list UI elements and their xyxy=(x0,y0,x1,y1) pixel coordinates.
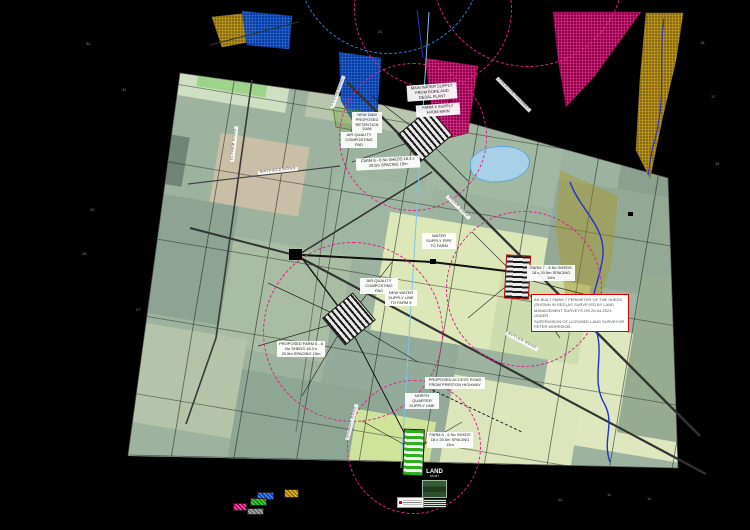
label-farm7-sheds: FARM 7 - 6 No SHEDS 18 x 20.5m SPACING 1… xyxy=(527,265,575,281)
legend-swatch-grey xyxy=(247,508,264,515)
label-retention-dam: NEW DAM PROPOSED RETENTION DAM xyxy=(352,112,382,133)
tick-10: 11 xyxy=(607,493,611,497)
building-marker-pipe xyxy=(430,259,436,264)
label-farm4-sheds: FARM 4 - 6 No SHEDS 18 x 20.5m SPACING 1… xyxy=(427,432,473,448)
tick-9: 12 xyxy=(558,498,562,502)
legend-swatch-magenta xyxy=(233,503,247,511)
legend-swatch-green xyxy=(250,498,267,506)
zone-blue-topleft xyxy=(242,11,292,49)
tick-3: 28 xyxy=(82,252,86,256)
label-north-quarter: NORTH QUARTER SUPPLY LINE xyxy=(405,393,439,409)
zone-yellow-topleft xyxy=(212,13,259,47)
tick-8: 16 xyxy=(715,162,719,166)
note-line: (SHOWN IN RED) AS SURVEYED BY LAND xyxy=(534,302,626,307)
zone-yellow-band xyxy=(636,13,683,178)
label-composting-pad-north: AIR QUALITY COMPOSTING PAD xyxy=(341,132,377,148)
tick-5: 21 xyxy=(378,30,382,34)
tick-7: 17 xyxy=(711,95,715,99)
surveyor-note-box: AS BUILT FARM 7 PERIMETER OF THE SHEDS(S… xyxy=(531,294,629,332)
scale-stamp xyxy=(397,497,424,508)
tick-6: 18 xyxy=(700,41,704,45)
stamp-red-mark xyxy=(399,501,402,504)
tick-2: 29 xyxy=(90,208,94,212)
logo-landscape-graphic xyxy=(422,480,447,498)
tick-1: 31 xyxy=(122,88,126,92)
road-label-preston-hwy: PRESTON HIGHWAY xyxy=(496,77,532,113)
logo-subtitle: MGMT xyxy=(421,475,448,479)
land-management-surveys-logo: LAND MGMT xyxy=(421,469,448,509)
label-new-supply-line: NEW WATER SUPPLY LINE TO FARM 5 xyxy=(385,290,417,306)
tick-4: 27 xyxy=(136,308,140,312)
label-water-pipe: WATER SUPPLY PIPE TO FARM xyxy=(422,233,456,249)
logo-caption-lines xyxy=(423,499,446,508)
building-marker-east xyxy=(628,212,633,216)
tick-11: 10 xyxy=(647,497,651,501)
label-access-road: PROPOSED ACCESS ROAD FROM PRESTON HIGHWA… xyxy=(425,377,485,389)
note-line: PETER MORRISON. xyxy=(534,324,626,329)
survey-plan-sheet: MAIN WATER SUPPLY FROM BORE AND DESAL PL… xyxy=(0,0,750,530)
stream-topright xyxy=(648,18,664,175)
note-line: MANAGEMENT SURVEYS ON 20-04-2023 UNDER xyxy=(534,308,626,319)
tick-0: 32 xyxy=(86,42,90,46)
label-farm5-sheds: PROPOSED FARM 5 - 6 No SHEDS 18.3 x 20.5… xyxy=(277,341,325,357)
label-main-supply: MAIN WATER SUPPLY FROM BORE AND DESAL PL… xyxy=(406,82,457,102)
legend-swatch-yellow xyxy=(284,489,299,498)
stamp-text-lines xyxy=(403,500,422,505)
track-topleft xyxy=(210,22,298,45)
building-marker-junction xyxy=(289,249,302,260)
